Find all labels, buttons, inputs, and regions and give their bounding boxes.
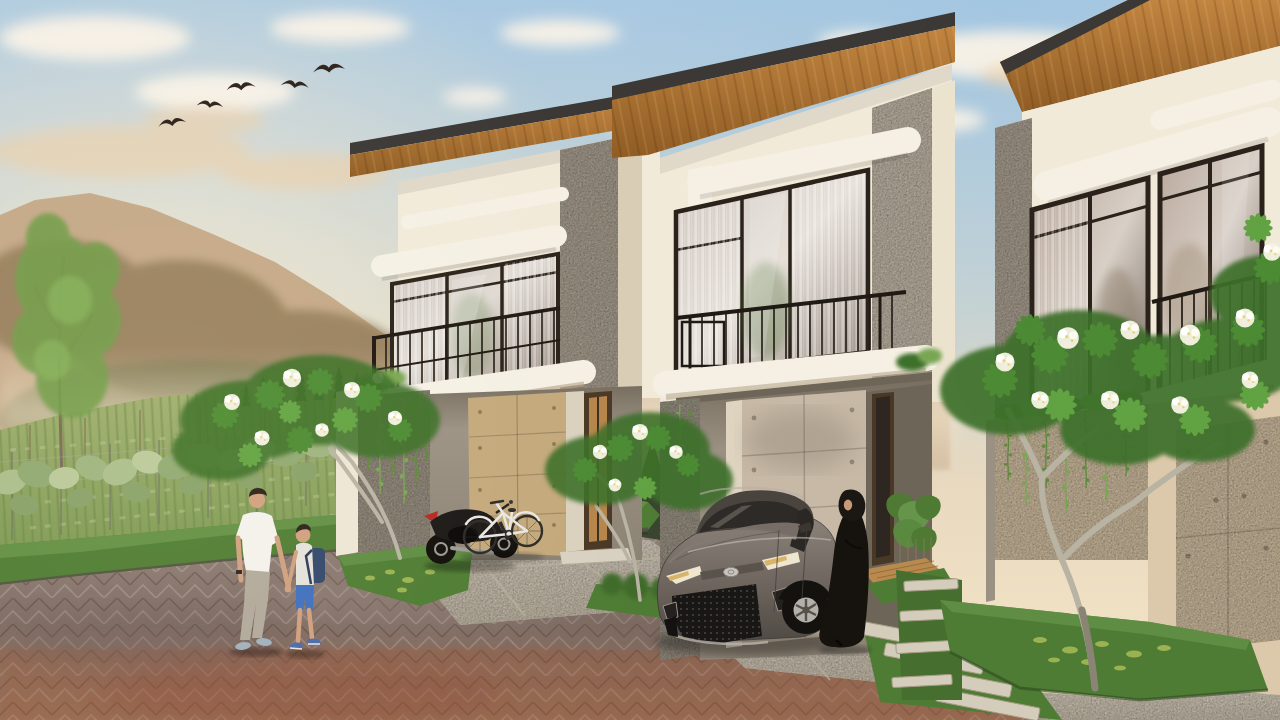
warm-light-overlay xyxy=(0,0,1280,720)
architectural-render xyxy=(0,0,1280,720)
